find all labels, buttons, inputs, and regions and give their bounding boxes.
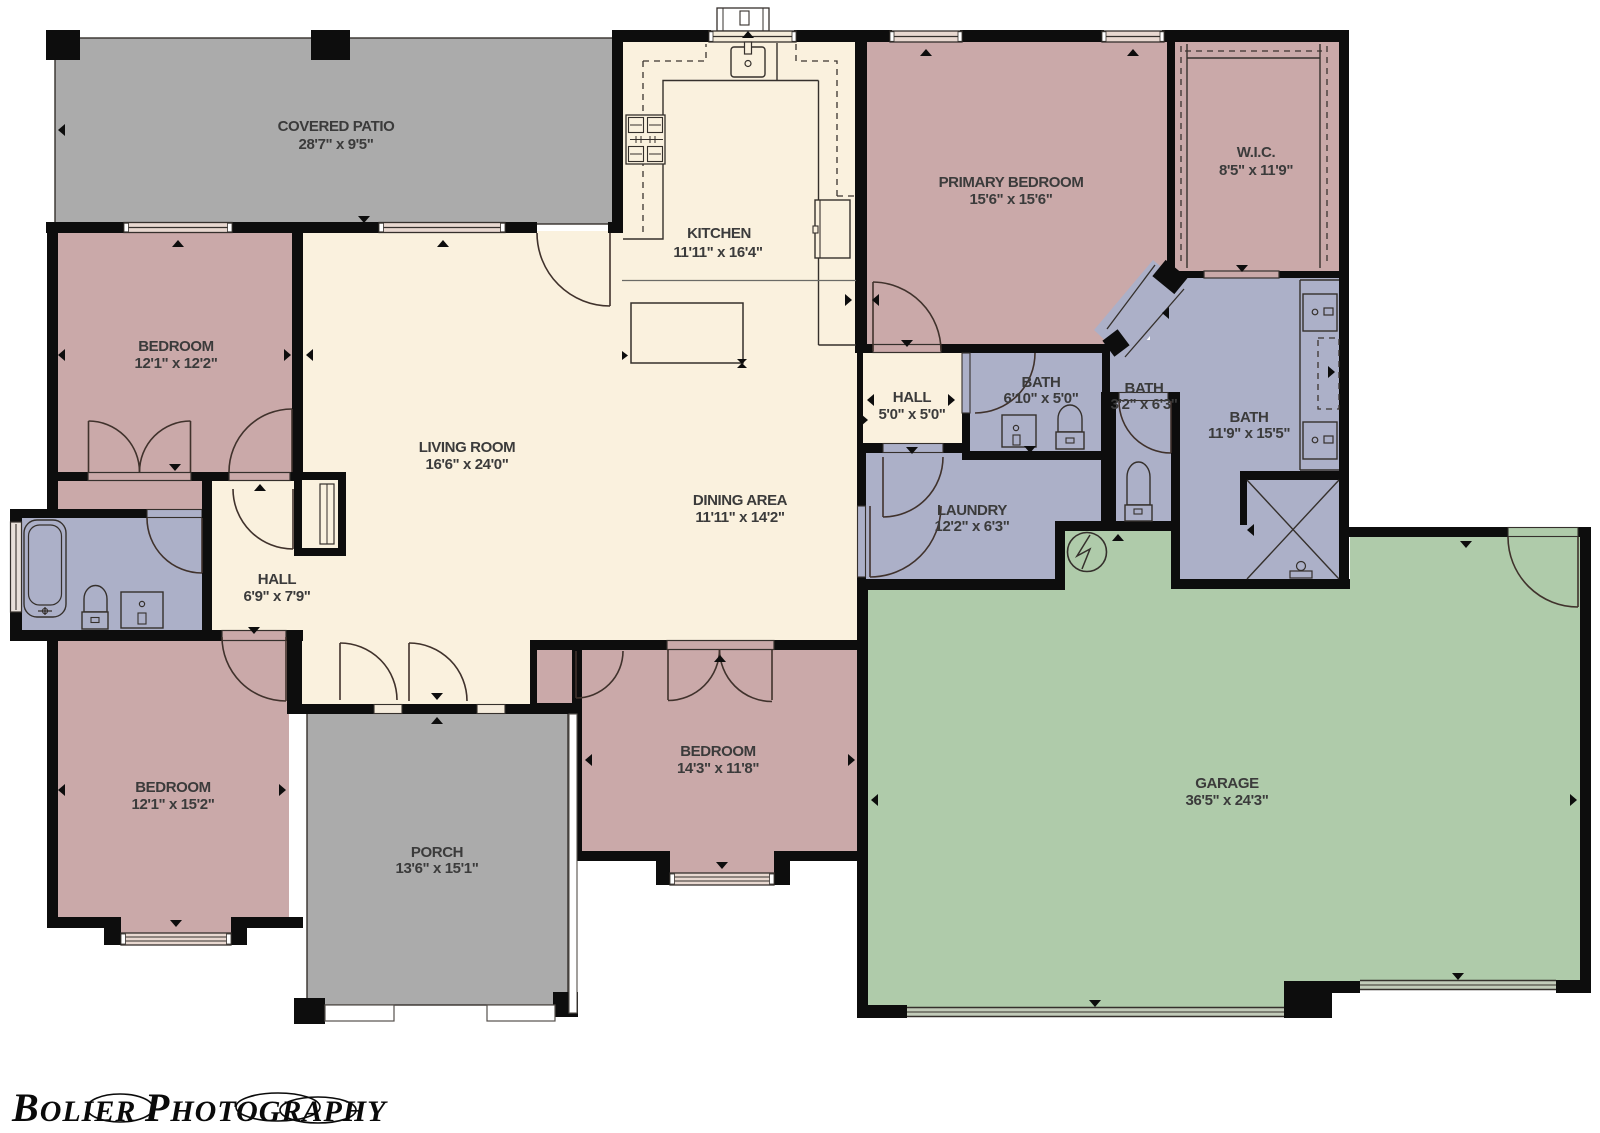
svg-text:36'5" x 24'3": 36'5" x 24'3" [1186, 792, 1269, 809]
svg-text:KITCHEN: KITCHEN [687, 225, 751, 242]
svg-text:13'6" x 15'1": 13'6" x 15'1" [396, 860, 479, 877]
svg-text:LAUNDRY: LAUNDRY [937, 502, 1007, 519]
svg-text:8'5" x 11'9": 8'5" x 11'9" [1219, 162, 1293, 179]
svg-text:BEDROOM: BEDROOM [138, 338, 214, 355]
svg-text:PORCH: PORCH [411, 844, 463, 861]
svg-text:3'2" x 6'3": 3'2" x 6'3" [1110, 396, 1177, 413]
svg-text:11'11" x 14'2": 11'11" x 14'2" [695, 509, 784, 526]
svg-text:HALL: HALL [258, 571, 297, 588]
svg-text:COVERED PATIO: COVERED PATIO [278, 118, 395, 135]
svg-text:BEDROOM: BEDROOM [680, 743, 756, 760]
svg-text:16'6" x 24'0": 16'6" x 24'0" [426, 456, 509, 473]
svg-text:6'9" x 7'9": 6'9" x 7'9" [243, 588, 310, 605]
svg-text:BATH: BATH [1230, 409, 1269, 426]
svg-text:GARAGE: GARAGE [1195, 775, 1259, 792]
svg-text:DINING AREA: DINING AREA [693, 492, 788, 509]
svg-text:BATH: BATH [1022, 374, 1061, 391]
svg-text:W.I.C.: W.I.C. [1237, 144, 1276, 161]
svg-text:6'10" x 5'0": 6'10" x 5'0" [1004, 390, 1079, 407]
svg-text:12'1" x 15'2": 12'1" x 15'2" [132, 796, 215, 813]
svg-text:HALL: HALL [893, 389, 932, 406]
svg-text:5'0" x 5'0": 5'0" x 5'0" [878, 406, 945, 423]
svg-text:LIVING ROOM: LIVING ROOM [419, 439, 515, 456]
svg-text:11'11" x 16'4": 11'11" x 16'4" [673, 244, 762, 261]
svg-text:11'9" x 15'5": 11'9" x 15'5" [1208, 425, 1290, 442]
svg-text:12'1" x 12'2": 12'1" x 12'2" [135, 355, 218, 372]
svg-text:PRIMARY BEDROOM: PRIMARY BEDROOM [939, 174, 1084, 191]
svg-text:BEDROOM: BEDROOM [135, 779, 211, 796]
svg-text:15'6" x 15'6": 15'6" x 15'6" [970, 191, 1053, 208]
svg-text:28'7" x 9'5": 28'7" x 9'5" [299, 136, 374, 153]
svg-text:BATH: BATH [1125, 380, 1164, 397]
svg-text:12'2" x 6'3": 12'2" x 6'3" [935, 518, 1010, 535]
svg-text:14'3" x 11'8": 14'3" x 11'8" [677, 760, 759, 777]
